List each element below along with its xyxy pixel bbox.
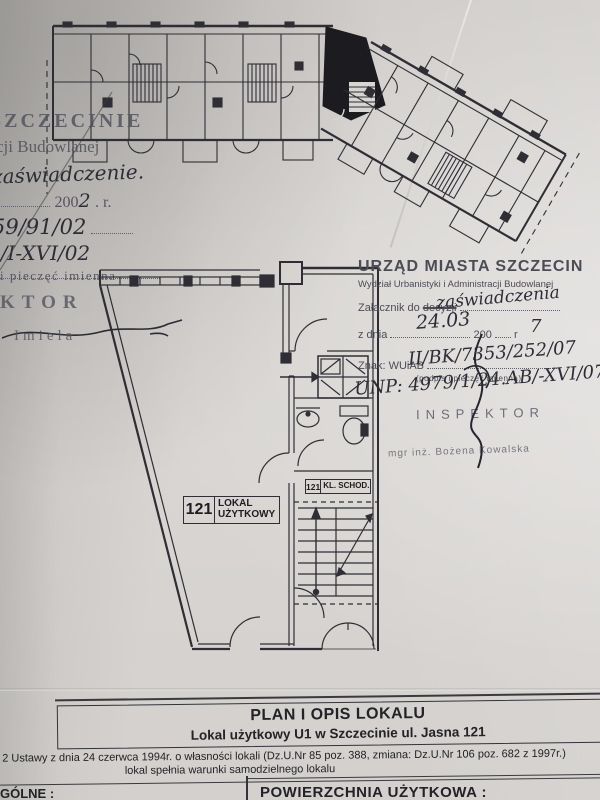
left-stamp-inspector-fragment: KTOR xyxy=(0,292,84,314)
footer-title-box: PLAN I OPIS LOKALU Lokal użytkowy U1 w S… xyxy=(57,699,600,750)
double-door-arcs xyxy=(322,623,374,649)
staircase-label-box: 121 KL. SCHOD. xyxy=(305,479,371,494)
unit-number: 121 xyxy=(184,497,215,523)
scanned-document-photo: SZCZECINIE cji Budowlanej zaświadczenie.… xyxy=(0,0,600,800)
staircase-caption: KL. SCHOD. xyxy=(321,480,371,493)
footer-left-cell-fragment: GÓLNE : xyxy=(0,786,54,800)
left-stamp-name-fragment: Imiela xyxy=(14,328,76,345)
sink-symbol xyxy=(296,408,320,427)
usable-area-heading: POWIERZCHNIA UŻYTKOWA : xyxy=(260,784,487,800)
stairs-symbol xyxy=(248,64,276,102)
crease-line xyxy=(0,90,130,275)
paper-crease-horizontal xyxy=(0,688,600,691)
stamp-title: URZĄD MIASTA SZCZECIN xyxy=(358,258,600,276)
office-stamp: URZĄD MIASTA SZCZECIN Wydział Urbanistyk… xyxy=(358,258,600,473)
legal-reference-line: Art. 2 Ustawy z dnia 24 czerwca 1994r. o… xyxy=(0,747,600,765)
stamp-department: Wydział Urbanistyki i Administracji Budo… xyxy=(358,279,600,290)
unit-label-box: 121 LOKAL UŻYTKOWY xyxy=(183,496,280,524)
stamp-date-year-handwriting: 7 xyxy=(530,316,541,337)
door-arc xyxy=(298,440,324,466)
footer-cell-divider xyxy=(246,776,248,800)
unit-floor-plan xyxy=(80,256,400,688)
inspector-signature-scribble xyxy=(420,330,530,475)
staircase-number: 121 xyxy=(306,480,321,493)
overview-highlighted-unit xyxy=(323,27,385,120)
stairs-symbol xyxy=(133,64,161,102)
stairwell xyxy=(294,502,378,604)
vent-arrow xyxy=(280,373,319,382)
unit-type: LOKAL UŻYTKOWY xyxy=(215,497,278,523)
